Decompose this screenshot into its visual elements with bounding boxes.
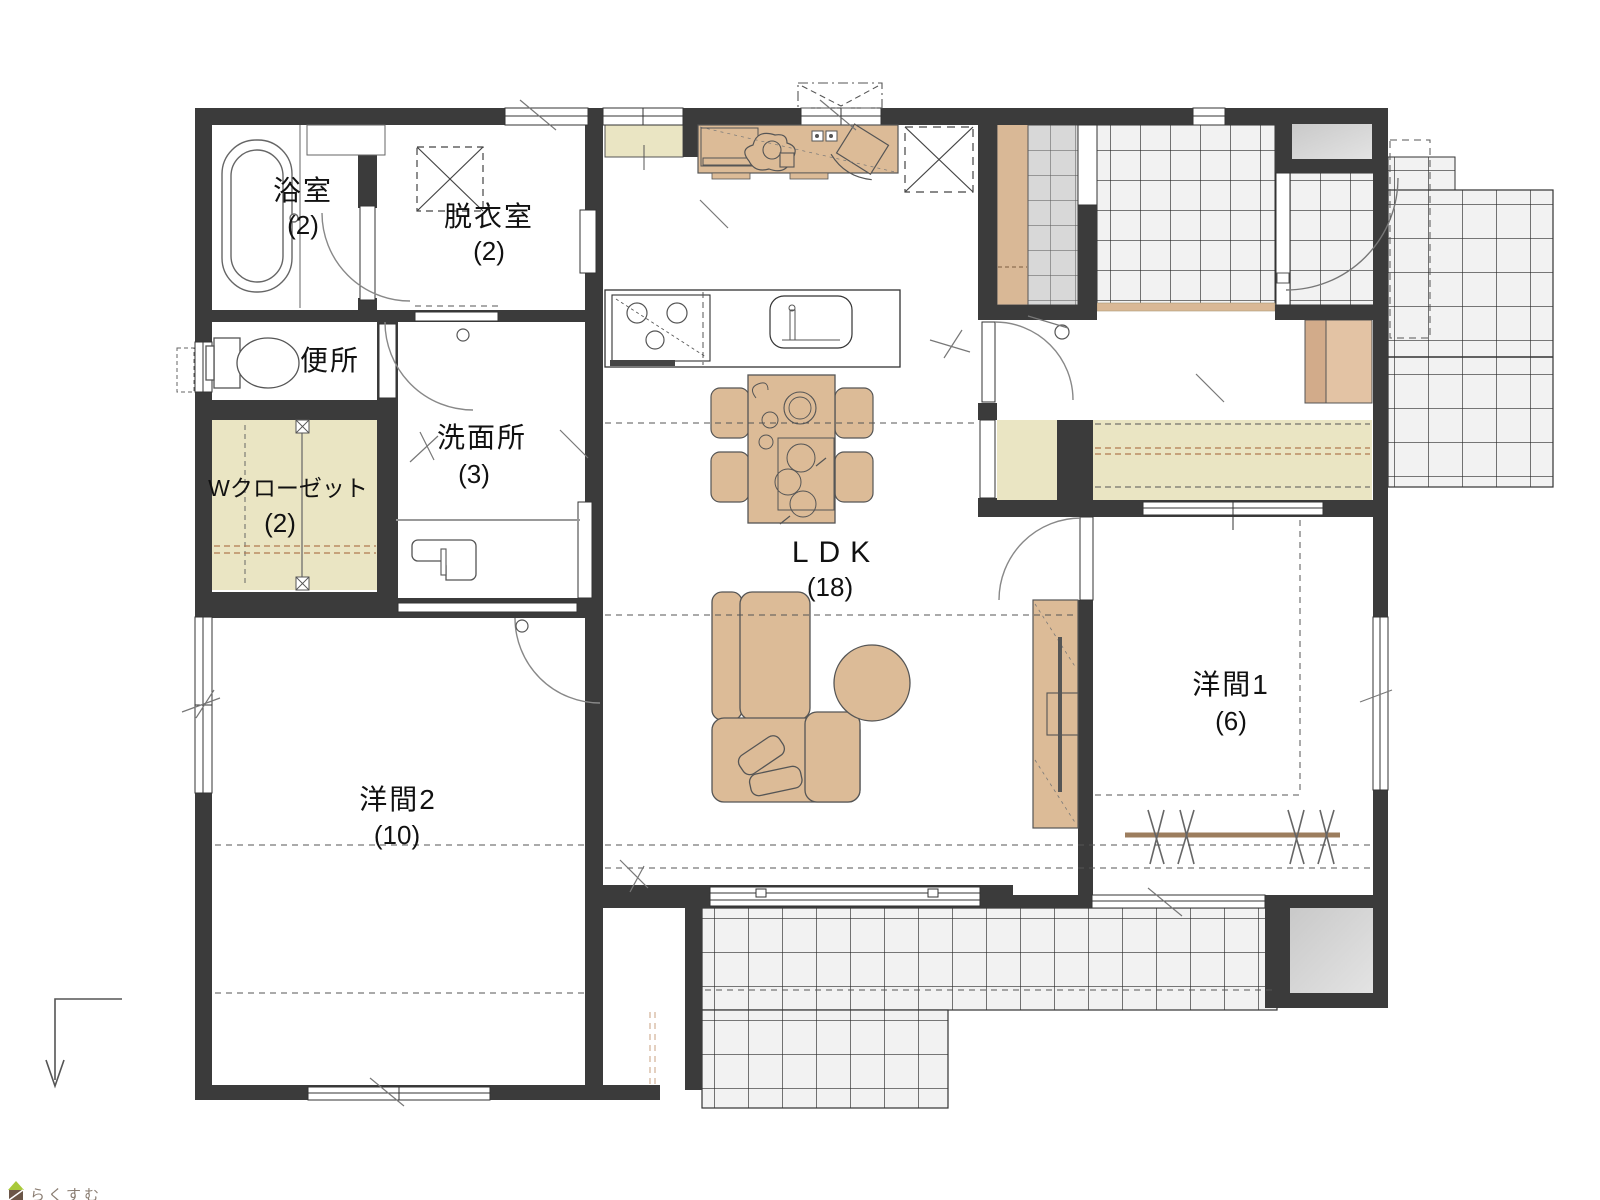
dining-table	[748, 375, 835, 523]
floor-plan-page: 浴室 (2) 脱衣室 (2) 便所 Wクローゼット (2) 洗面所 (3) LD…	[0, 0, 1600, 1200]
logo-house-icon	[8, 1181, 24, 1200]
genkan-inner-door	[1078, 125, 1097, 205]
window-room2-bottom	[308, 1087, 490, 1100]
label-room2: 洋間2	[359, 784, 437, 815]
terrace-tile-upper	[702, 908, 1277, 1010]
logo-text: らくすむ	[30, 1187, 102, 1200]
logo: らくすむ	[8, 1181, 102, 1200]
hall-closet-floor	[997, 420, 1057, 500]
hall-coat-closet-left	[1305, 320, 1326, 403]
entrance-door	[1276, 173, 1290, 305]
round-table	[834, 645, 910, 721]
window-entrance-top	[1193, 108, 1225, 125]
toilet-fixture	[206, 338, 299, 388]
label-room1: 洋間1	[1192, 669, 1270, 700]
room2-sliding-door	[398, 603, 577, 612]
washbasin	[396, 520, 580, 580]
floor-plan-drawing: 浴室 (2) 脱衣室 (2) 便所 Wクローゼット (2) 洗面所 (3) LD…	[0, 0, 1600, 1200]
dressing-pocket-door	[580, 210, 596, 273]
refrigerator-space	[905, 127, 973, 192]
label-bath-size: (2)	[287, 210, 319, 240]
dressing-door	[415, 312, 498, 321]
walkin-closet-floor	[212, 420, 377, 590]
tv-screen	[1058, 637, 1062, 792]
counter-desk	[698, 122, 898, 185]
genkan-edge	[1097, 303, 1275, 311]
tv-board	[1033, 600, 1078, 828]
window-room2-left	[195, 617, 212, 793]
label-ldk-size: (18)	[807, 572, 853, 602]
label-dressing: 脱衣室	[444, 201, 534, 232]
room1-desk	[1125, 810, 1340, 864]
label-room1-size: (6)	[1215, 706, 1247, 736]
window-room1-bottom	[1092, 895, 1265, 908]
stove	[612, 295, 710, 361]
outdoor-gray-pad-top	[1290, 908, 1373, 993]
kitchen-island	[605, 290, 900, 367]
ldk-hall-door	[982, 322, 995, 402]
window-kitchen-left-top	[603, 108, 683, 125]
range-canopy	[798, 83, 882, 108]
room1-door	[1080, 517, 1093, 600]
genkan-tile-floor	[1097, 125, 1275, 305]
stove-front-hatch	[610, 360, 675, 366]
label-wcloset: Wクローゼット	[208, 475, 368, 501]
label-bath: 浴室	[273, 175, 333, 206]
label-wcloset-size: (2)	[264, 508, 296, 538]
window-kitchen-top	[801, 108, 881, 125]
terrace-tile-lower	[702, 1010, 948, 1108]
label-washroom-size: (3)	[458, 459, 490, 489]
bath-door	[360, 206, 375, 300]
hall-coat-closet-right	[1326, 320, 1372, 403]
label-dressing-size: (2)	[473, 236, 505, 266]
entry-arrow-icon	[46, 999, 122, 1086]
dining-set	[711, 375, 873, 524]
label-ldk: LDK	[792, 536, 880, 569]
room1-closet-floor	[1093, 420, 1372, 500]
label-washroom: 洗面所	[437, 422, 527, 453]
window-ldk-terrace-slider	[710, 887, 980, 906]
shoe-cabinet	[997, 123, 1028, 305]
washroom-ldk-door	[578, 502, 592, 598]
label-toilet: 便所	[300, 345, 360, 376]
genkan-step-tile	[1028, 125, 1078, 305]
label-room2-size: (10)	[374, 820, 420, 850]
entrance-gray-box-top	[1292, 124, 1372, 159]
window-room1-right	[1373, 617, 1388, 790]
hall-closet-door	[980, 420, 995, 498]
